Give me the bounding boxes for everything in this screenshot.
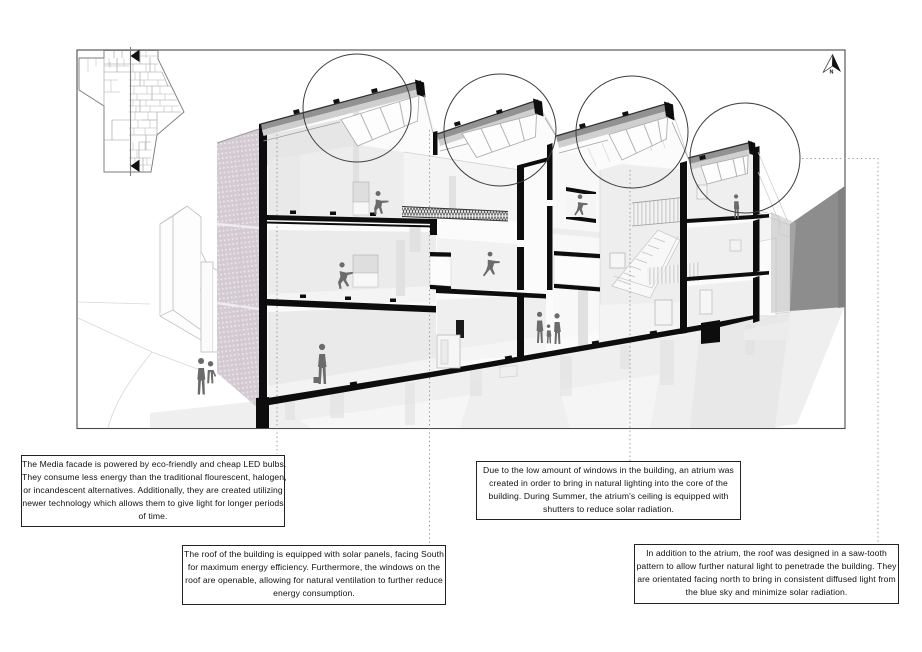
svg-text:N: N (830, 70, 834, 76)
